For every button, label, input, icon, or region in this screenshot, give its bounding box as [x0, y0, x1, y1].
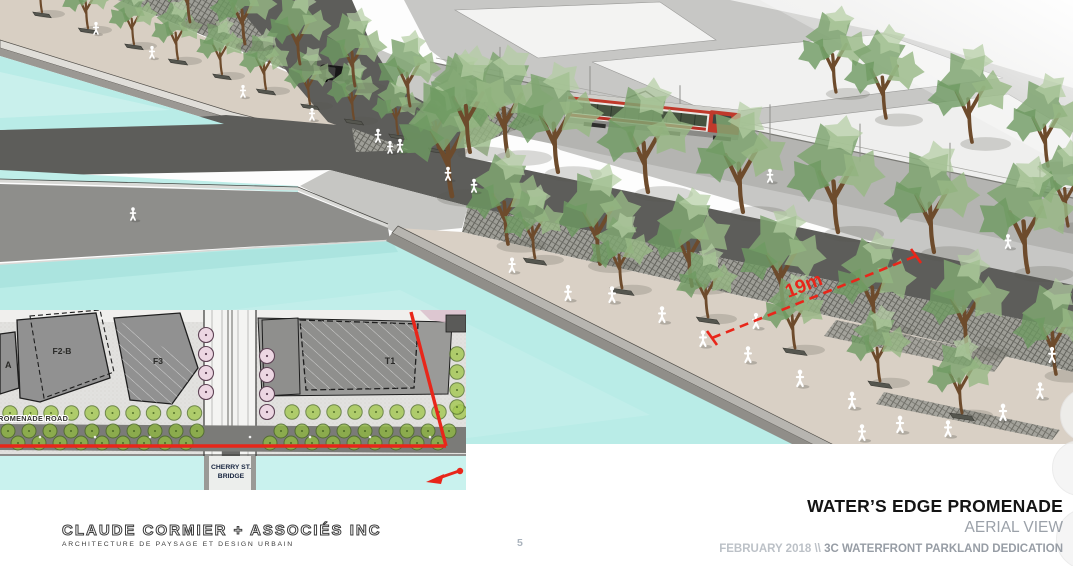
tree-circle [43, 424, 57, 438]
tree-circle [285, 405, 299, 419]
tree-circle [450, 383, 464, 397]
tree-circle [326, 436, 340, 450]
tree-circle [158, 436, 172, 450]
tree-circle [306, 405, 320, 419]
tree-circle [450, 365, 464, 379]
tree-circle [389, 436, 403, 450]
tree-circle [337, 424, 351, 438]
tree-circle [411, 405, 425, 419]
inset-person-dot [39, 436, 42, 439]
tree-circle [105, 406, 119, 420]
tree-circle [32, 436, 46, 450]
presentation-slide: 19m [0, 0, 1073, 566]
inset-label-bridge: BRIDGE [218, 473, 245, 480]
inset-person-dot [309, 436, 312, 439]
tree-circle [421, 424, 435, 438]
slide-title: WATER’S EDGE PROMENADE [719, 496, 1063, 517]
slide-title-block: WATER’S EDGE PROMENADE AERIAL VIEW FEBRU… [719, 496, 1063, 555]
tree-circle [11, 436, 25, 450]
shrub-circle [199, 347, 214, 362]
inset-person-dot [94, 436, 97, 439]
slide-meta: FEBRUARY 2018 \\ 3C WATERFRONT PARKLAND … [719, 543, 1063, 555]
page-number: 5 [517, 537, 523, 549]
tree-circle [295, 424, 309, 438]
tree-circle [327, 405, 341, 419]
inset-label-building-f3: F3 [153, 356, 163, 366]
tree-circle [127, 424, 141, 438]
tree-circle [95, 436, 109, 450]
tree-circle [316, 424, 330, 438]
slide-date: FEBRUARY 2018 \\ [719, 543, 824, 555]
inset-label-building-t1: T1 [385, 356, 396, 366]
inset-label-building-f2b: F2-B [53, 346, 72, 356]
slide-subtitle: AERIAL VIEW [719, 519, 1063, 537]
tree-circle [64, 424, 78, 438]
firm-name: CLAUDE CORMIER + ASSOCIÉS INC [62, 522, 382, 539]
shrub-circle [260, 387, 275, 402]
tree-circle [379, 424, 393, 438]
tree-circle [167, 406, 181, 420]
inset-person-dot [149, 436, 152, 439]
tree-circle [169, 424, 183, 438]
tree-circle [179, 436, 193, 450]
tree-circle [53, 436, 67, 450]
tree-circle [348, 405, 362, 419]
tree-circle [410, 436, 424, 450]
tree-circle [137, 436, 151, 450]
inset-person-dot [429, 436, 432, 439]
tree-circle [400, 424, 414, 438]
tree-circle [106, 424, 120, 438]
tree-circle [187, 406, 201, 420]
shrub-circle [260, 405, 275, 420]
shrub-circle [260, 368, 275, 383]
shrub-circle [199, 385, 214, 400]
tree-circle [274, 424, 288, 438]
shrub-circle [260, 349, 275, 364]
tree-circle [146, 406, 160, 420]
tree-circle [22, 424, 36, 438]
inset-person-dot [369, 436, 372, 439]
inset-label-promenade-road: PROMENADE ROAD [0, 414, 68, 423]
tree-circle [450, 347, 464, 361]
tree-circle [369, 405, 383, 419]
shrub-circle [199, 366, 214, 381]
inset-person-dot [249, 436, 252, 439]
tree-circle [116, 436, 130, 450]
firm-logo: CLAUDE CORMIER + ASSOCIÉS INC ARCHITECTU… [62, 522, 382, 548]
tree-circle [305, 436, 319, 450]
tree-circle [347, 436, 361, 450]
tree-circle [85, 424, 99, 438]
tree-circle [126, 406, 140, 420]
tree-circle [74, 436, 88, 450]
tree-circle [190, 424, 204, 438]
firm-tagline: ARCHITECTURE DE PAYSAGE ET DESIGN URBAIN [62, 541, 382, 548]
tree-circle [263, 436, 277, 450]
plan-inset-map: A F2-B F3 T1 PROMENADE ROAD CHERRY ST. B… [0, 310, 466, 490]
slide-project: 3C WATERFRONT PARKLAND DEDICATION [824, 543, 1063, 555]
tree-circle [85, 406, 99, 420]
tree-circle [450, 400, 464, 414]
tree-circle [390, 405, 404, 419]
inset-label-building-a: A [5, 360, 12, 370]
tree-circle [1, 424, 15, 438]
inset-label-cherry-st: CHERRY ST. [211, 464, 251, 471]
shrub-circle [199, 328, 214, 343]
tree-circle [284, 436, 298, 450]
